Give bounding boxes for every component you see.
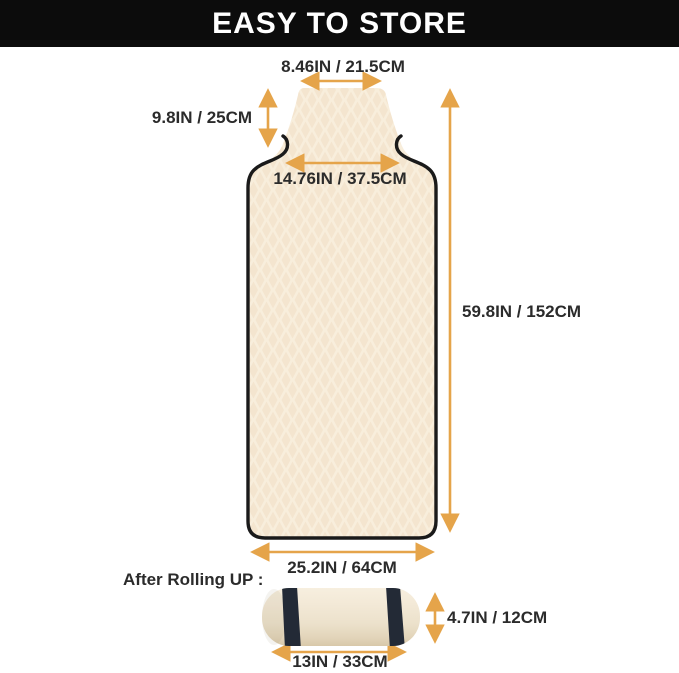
after-rolling-label: After Rolling UP :	[123, 570, 263, 590]
roll-height-label: 4.7IN / 12CM	[447, 608, 547, 628]
headrest-width-label: 8.46IN / 21.5CM	[281, 57, 405, 77]
product-dimension-diagram: EASY TO STORE	[0, 0, 679, 673]
body-width-label: 25.2IN / 64CM	[287, 558, 397, 578]
towel-shape	[248, 88, 436, 538]
neck-width-label: 14.76IN / 37.5CM	[273, 169, 406, 189]
roll-width-label: 13IN / 33CM	[292, 652, 387, 672]
rolled-towel	[262, 586, 420, 650]
body-height-label: 59.8IN / 152CM	[462, 302, 581, 322]
headrest-height-label: 9.8IN / 25CM	[152, 108, 252, 128]
roll-end-shading	[262, 589, 286, 645]
